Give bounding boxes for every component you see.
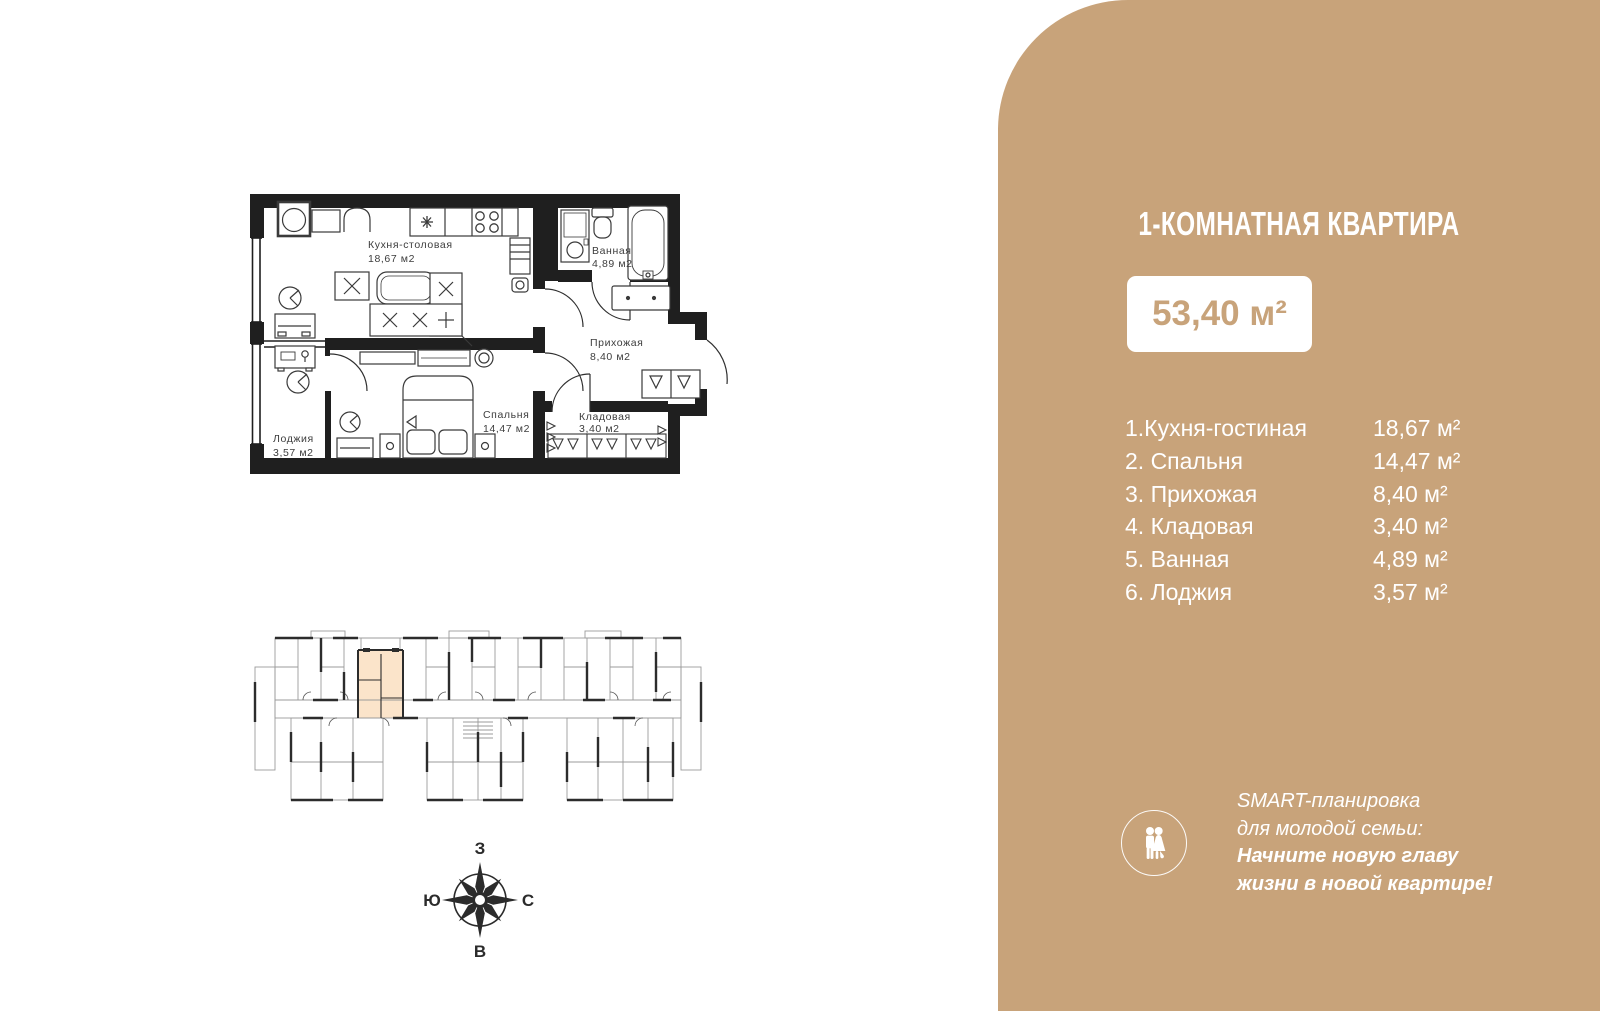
room-area: 14,47 м² xyxy=(1373,445,1460,478)
room-area-bath: 4,89 м2 xyxy=(592,258,633,270)
room-area: 3,40 м² xyxy=(1373,510,1448,543)
fridge-icon xyxy=(510,238,530,274)
room-area: 3,57 м² xyxy=(1373,576,1448,609)
room-list-item: 5. Ванная 4,89 м² xyxy=(1125,543,1495,576)
room-area: 4,89 м² xyxy=(1373,543,1448,576)
flyer-page: Кухня-столовая 18,67 м2 Ванная 4,89 м2 П… xyxy=(0,0,1600,1011)
room-area-kitchen: 18,67 м2 xyxy=(368,253,415,265)
smart-line-2: для молодой семьи: xyxy=(1237,816,1493,844)
smart-block: SMART-планировка для молодой семьи: Начн… xyxy=(1121,810,1541,930)
smart-line-1: SMART-планировка xyxy=(1237,788,1493,816)
speaker-icon xyxy=(475,349,493,367)
desk-icon xyxy=(275,346,315,371)
hall-bench-icon xyxy=(612,286,670,310)
room-area: 8,40 м² xyxy=(1373,478,1448,511)
total-area-value: 53,40 м² xyxy=(1152,294,1287,334)
room-label-bath: Ванная xyxy=(592,245,632,257)
room-list-item: 1.Кухня-гостиная 18,67 м² xyxy=(1125,412,1495,445)
room-area-loggia: 3,57 м2 xyxy=(273,447,314,459)
compass-rose: З В Ю С xyxy=(420,840,540,960)
family-couple-icon xyxy=(1134,823,1174,863)
kitchen-furniture xyxy=(275,202,530,346)
room-area-bedroom: 14,47 м2 xyxy=(483,423,530,435)
compass-north-label: С xyxy=(522,891,534,910)
sink-icon xyxy=(283,209,306,232)
family-badge xyxy=(1121,810,1187,876)
plant-icon xyxy=(340,412,360,432)
room-label-loggia: Лоджия xyxy=(273,433,314,445)
room-area-hall: 8,40 м2 xyxy=(590,351,631,363)
compass-east-label: В xyxy=(474,942,486,960)
page-title: 1-КОМНАТНАЯ КВАРТИРА xyxy=(998,205,1600,243)
room-label: 3. Прихожая xyxy=(1125,481,1257,507)
toilet-icon xyxy=(592,208,613,238)
window-left-kitchen xyxy=(251,238,262,322)
smart-line-3: Начните новую главу xyxy=(1237,843,1493,871)
bench-icon xyxy=(275,314,315,338)
room-label-kitchen: Кухня-столовая xyxy=(368,239,453,251)
washing-machine-icon xyxy=(561,210,589,262)
bathtub-icon xyxy=(628,206,668,280)
room-label-storage: Кладовая xyxy=(579,411,631,423)
room-list-item: 6. Лоджия 3,57 м² xyxy=(1125,576,1495,609)
room-list: 1.Кухня-гостиная 18,67 м² 2. Спальня 14,… xyxy=(1125,412,1495,609)
bedroom-furniture xyxy=(337,349,495,458)
smart-line-4: жизни в новой квартире! xyxy=(1237,871,1493,899)
loggia-furniture xyxy=(275,346,315,393)
room-area-storage: 3,40 м2 xyxy=(579,423,620,435)
hall-wardrobe-icon xyxy=(642,370,700,398)
room-label: 5. Ванная xyxy=(1125,546,1229,572)
room-label-bedroom: Спальня xyxy=(483,409,529,421)
room-label-hall: Прихожая xyxy=(590,337,643,349)
apartment-floor-plan: Кухня-столовая 18,67 м2 Ванная 4,89 м2 П… xyxy=(240,186,732,486)
plant-icon xyxy=(287,371,309,393)
window-left-loggia xyxy=(251,344,262,444)
plant-icon xyxy=(279,287,301,309)
compass-south-label: Ю xyxy=(423,891,441,910)
total-area-badge: 53,40 м² xyxy=(1127,276,1312,352)
room-label: 1.Кухня-гостиная xyxy=(1125,415,1307,441)
room-label: 2. Спальня xyxy=(1125,448,1243,474)
room-area: 18,67 м² xyxy=(1373,412,1460,445)
shelf-icon xyxy=(360,352,415,364)
bench-icon xyxy=(337,438,373,458)
compass-west-label: З xyxy=(475,840,486,858)
building-floor-plan xyxy=(253,622,703,802)
sink-star-icon xyxy=(421,216,433,228)
bed-icon xyxy=(403,376,473,458)
chair-icon xyxy=(344,208,370,232)
room-list-item: 2. Спальня 14,47 м² xyxy=(1125,445,1495,478)
smart-text: SMART-планировка для молодой семьи: Начн… xyxy=(1237,788,1493,898)
room-list-item: 3. Прихожая 8,40 м² xyxy=(1125,478,1495,511)
room-label: 4. Кладовая xyxy=(1125,513,1254,539)
room-list-item: 4. Кладовая 3,40 м² xyxy=(1125,510,1495,543)
room-label: 6. Лоджия xyxy=(1125,579,1232,605)
